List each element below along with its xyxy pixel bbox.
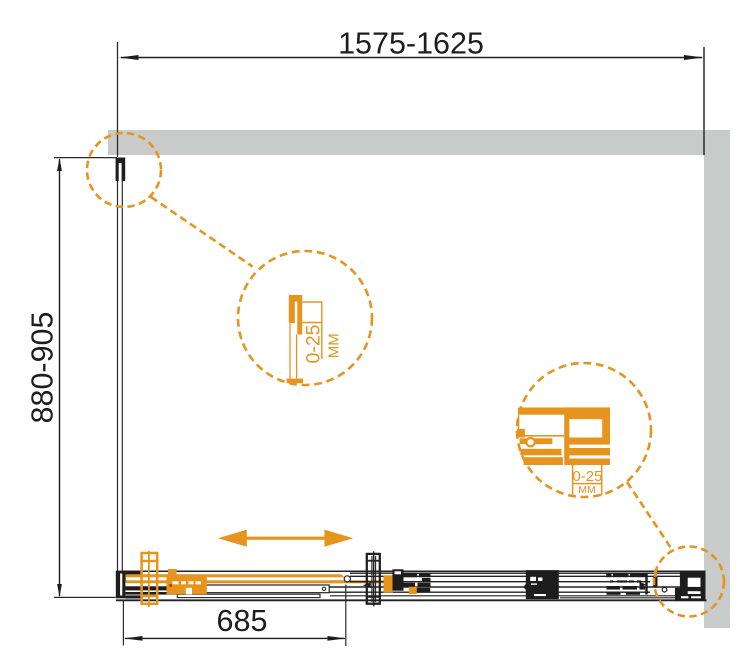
- svg-text:0-25: 0-25: [303, 324, 325, 363]
- svg-text:685: 685: [217, 604, 268, 638]
- svg-text:ММ: ММ: [326, 333, 343, 358]
- svg-text:880-905: 880-905: [26, 312, 60, 424]
- svg-text:1575-1625: 1575-1625: [338, 27, 484, 61]
- svg-text:ММ: ММ: [578, 484, 596, 496]
- svg-text:0-25: 0-25: [572, 468, 602, 485]
